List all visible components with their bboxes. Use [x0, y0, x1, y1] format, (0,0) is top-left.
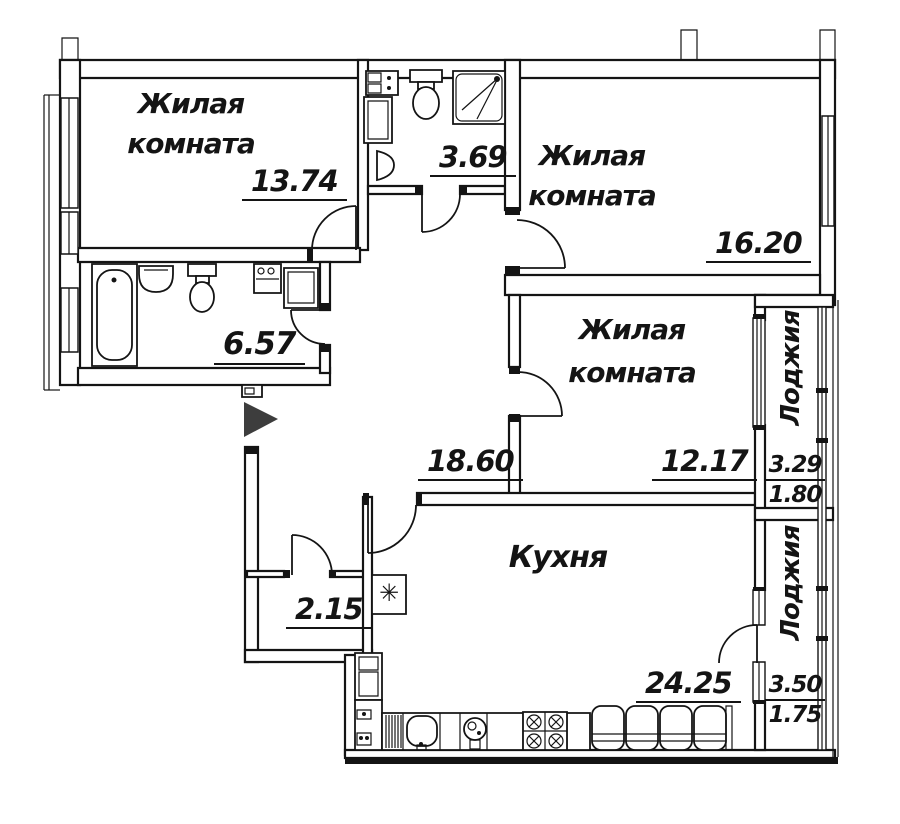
- entrance: [242, 385, 278, 437]
- room-area-hallway: 18.60: [418, 444, 523, 478]
- floor-plan: Жилая комната 13.74 3.69 Жилая комната 1…: [0, 0, 900, 824]
- loggia-area-full: 3.50: [765, 672, 826, 701]
- vent-symbol: ✳: [379, 579, 399, 607]
- room-name-living2: Жилая комната: [502, 136, 682, 216]
- room-name-line: Жилая: [502, 136, 682, 176]
- door-balcony: [719, 625, 757, 663]
- fridge: [355, 653, 382, 700]
- room-name-line: комната: [542, 351, 722, 394]
- room-area-living3: 12.17: [652, 444, 757, 478]
- room-name-living3: Жилая комната: [542, 308, 722, 394]
- window-left-1: [61, 98, 78, 208]
- shower: [453, 71, 505, 124]
- room-area-loggia1: 3.29 1.80: [763, 452, 827, 508]
- room-area-kitchen: 24.25: [636, 666, 741, 700]
- kitchen-counter: [382, 712, 590, 750]
- window-right-living2: [822, 116, 834, 226]
- window-living3-loggia: [753, 318, 765, 427]
- room-name-line: комната: [502, 176, 682, 216]
- room-name-loggia1: Лоджия: [776, 310, 806, 425]
- room-name-line: комната: [101, 124, 281, 164]
- room-area-living2: 16.20: [706, 226, 811, 260]
- round-sink: [407, 716, 437, 750]
- loggia-area-full: 3.29: [765, 452, 826, 481]
- corner-sink-unit: [366, 71, 398, 95]
- door-kitchen: [368, 505, 416, 553]
- entrance-arrow: [244, 402, 278, 437]
- window-left-2: [61, 212, 78, 254]
- washing-machine: [254, 264, 281, 293]
- small-sink: [377, 151, 394, 180]
- room-name-line: Жилая: [101, 84, 281, 124]
- cabinet: [284, 268, 318, 308]
- window-left-3: [61, 288, 78, 352]
- room-name-line: Жилая: [542, 308, 722, 351]
- toilet: [188, 264, 216, 312]
- toilet-2: [410, 70, 442, 119]
- door-living2: [517, 220, 565, 268]
- door-living1: [312, 206, 356, 250]
- sink-cabinet: [355, 700, 382, 750]
- room-area-bathroom: 6.57: [214, 326, 305, 362]
- door-bath-small: [422, 194, 460, 232]
- room-name-loggia2: Лоджия: [776, 525, 806, 640]
- door-storage: [292, 535, 332, 575]
- room-area-loggia2: 3.50 1.75: [763, 672, 827, 728]
- room-name-kitchen: Кухня: [503, 538, 613, 578]
- windows: [61, 98, 834, 750]
- sink: [139, 266, 173, 292]
- sofa: [592, 706, 732, 750]
- room-area-storage: 2.15: [286, 592, 372, 626]
- room-area-living1: 13.74: [242, 164, 347, 198]
- loggia-area-reduced: 1.80: [763, 481, 827, 508]
- bathtub: [92, 264, 137, 366]
- stove: [523, 712, 567, 750]
- loggia-area-reduced: 1.75: [763, 701, 827, 728]
- room-name-living1: Жилая комната: [101, 84, 281, 164]
- washing-machine-2: [364, 97, 392, 143]
